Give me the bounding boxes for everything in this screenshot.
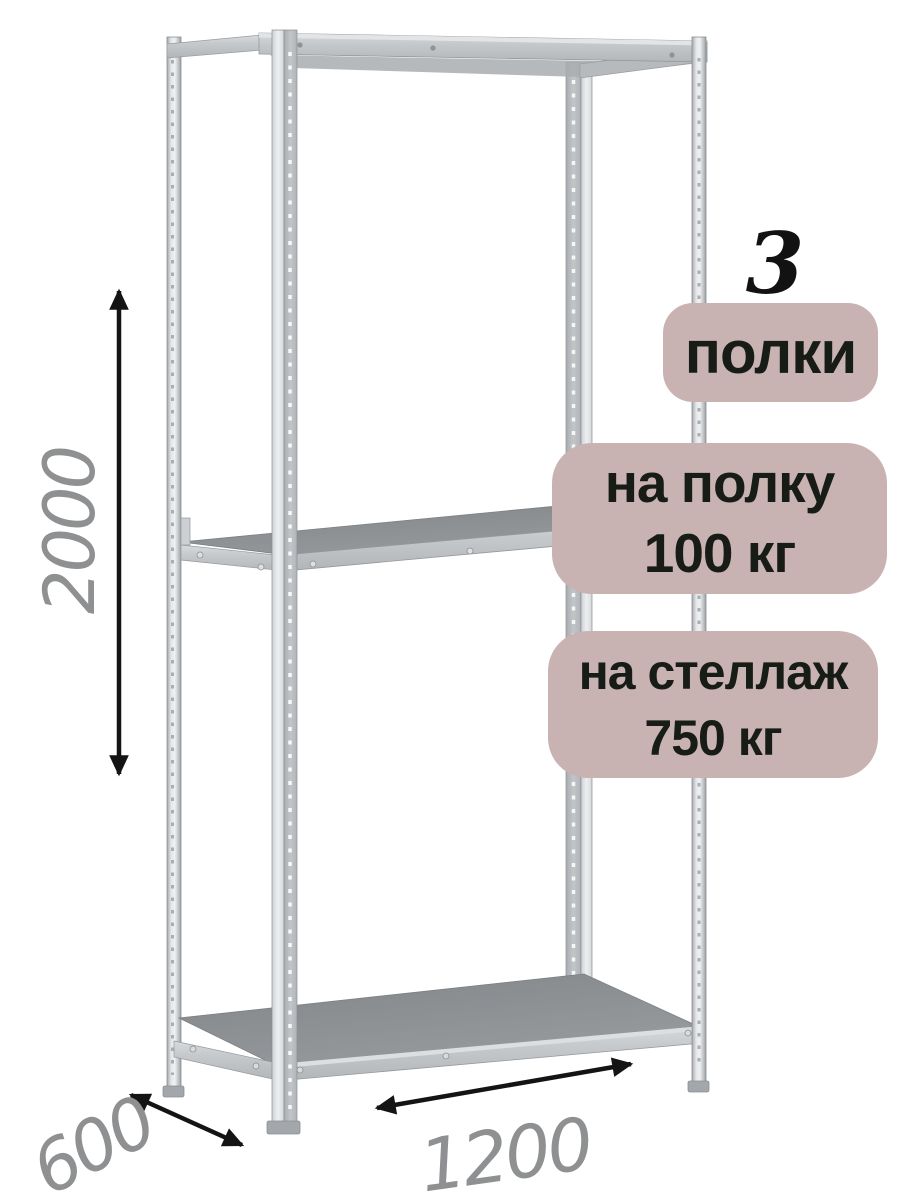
per-rack-load-line2: 750 кг bbox=[644, 705, 781, 771]
product-image: 2000 600 1200 3 полки на полку 100 кг на… bbox=[0, 0, 900, 1200]
rack-illustration bbox=[0, 0, 900, 1200]
per-rack-load-line1: на стеллаж bbox=[579, 639, 848, 705]
height-dimension-label: 2000 bbox=[35, 448, 105, 614]
per-rack-load-badge: на стеллаж 750 кг bbox=[548, 631, 878, 778]
width-arrow bbox=[377, 1064, 631, 1108]
shelf-count-badge: полки bbox=[663, 303, 878, 402]
top-shelf bbox=[167, 33, 707, 78]
per-shelf-load-badge: на полку 100 кг bbox=[552, 443, 887, 594]
per-shelf-load-line1: на полку bbox=[605, 449, 835, 519]
width-dimension-label: 1200 bbox=[415, 1107, 595, 1200]
shelf-count-number: 3 bbox=[739, 222, 811, 306]
post-back-left bbox=[163, 37, 184, 1097]
per-shelf-load-line2: 100 кг bbox=[644, 519, 795, 589]
post-front-left bbox=[267, 30, 300, 1134]
shelf-count-label: полки bbox=[685, 318, 856, 387]
